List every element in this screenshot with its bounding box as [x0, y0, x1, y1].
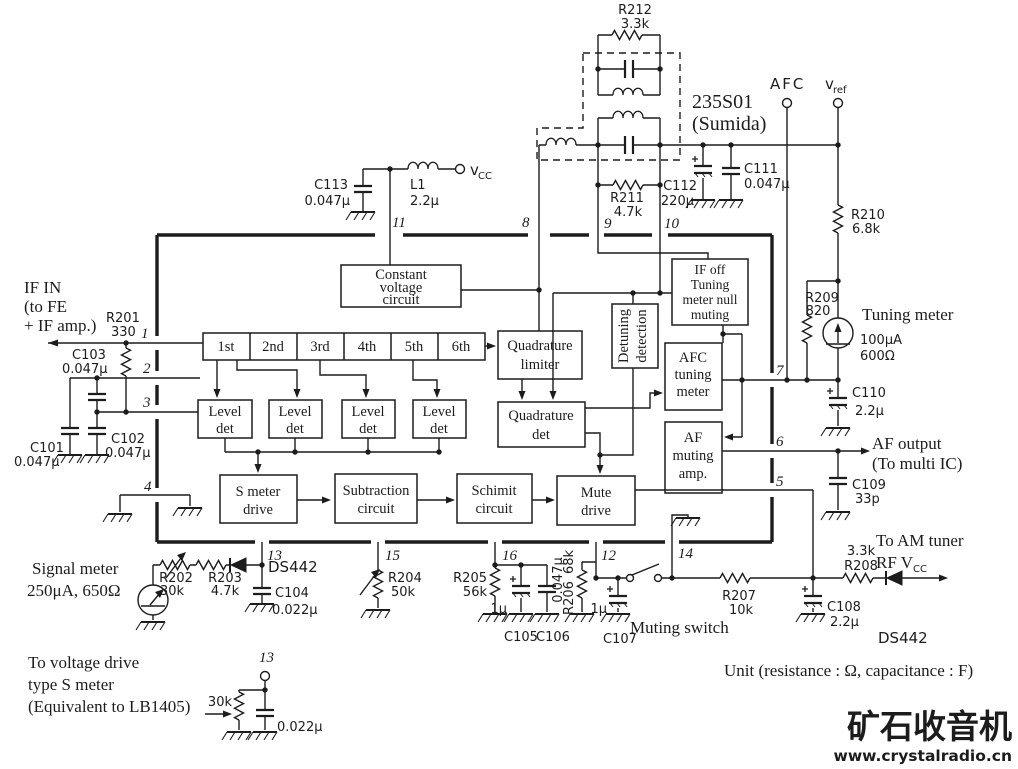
c112-ref: C112 — [663, 179, 697, 194]
quad-det-line2: det — [532, 427, 550, 443]
logo-text: 矿石收音机 — [847, 707, 1012, 746]
pin-15: 15 — [385, 548, 401, 564]
muting-switch-contact-right[interactable] — [655, 575, 662, 582]
s-meter-alt-line1: To voltage drive — [28, 653, 139, 672]
subtraction-line1: Subtraction — [343, 483, 411, 499]
c105-value: 1μ — [490, 602, 507, 617]
if-in-line1: IF IN — [24, 278, 61, 297]
r210-ref: R210 — [851, 208, 885, 223]
r207-value: 10k — [729, 603, 754, 618]
stage-2: 2nd — [262, 339, 285, 355]
c106-value: 0.047μ — [551, 557, 566, 603]
r207-ref: R207 — [722, 589, 756, 604]
r201-value: 330 — [111, 325, 136, 340]
subtraction-line2: circuit — [357, 501, 394, 517]
r211-value: 4.7k — [614, 205, 643, 220]
c101-value: 0.047μ — [14, 455, 60, 470]
s-meter-drive-line2: drive — [243, 502, 273, 518]
tuning-meter-current: 100μA — [860, 333, 902, 348]
schematic-page: Constant voltage circuit 1st 2nd 3rd 4th… — [0, 0, 1018, 769]
signal-meter-spec: 250μA, 650Ω — [27, 581, 121, 600]
pin-9: 9 — [604, 216, 612, 232]
pot-value: 30k — [208, 695, 233, 710]
r212-ref: R212 — [618, 3, 652, 18]
if-in-line3: + IF amp.) — [24, 316, 96, 335]
c104-value: 0.022μ — [272, 603, 318, 618]
r210-value: 6.8k — [852, 222, 881, 237]
stage-1: 1st — [218, 339, 235, 355]
muting-switch-label: Muting switch — [630, 618, 729, 637]
r208-ref: R208 — [844, 559, 878, 574]
quad-limiter-line2: limiter — [521, 357, 560, 373]
r204-value: 50k — [391, 585, 416, 600]
r209-value: 820 — [806, 304, 831, 319]
d1-ref: DS442 — [268, 558, 318, 576]
vcc-terminal — [456, 165, 465, 174]
background — [0, 0, 1018, 769]
c107-value: 1μ — [590, 602, 607, 617]
c104-ref: C104 — [275, 586, 309, 601]
detuning-line1: Detuning — [616, 309, 632, 363]
pin-16: 16 — [502, 548, 518, 564]
level-det-2-line2: det — [286, 421, 304, 437]
c112-value: 220μ — [661, 194, 694, 209]
afc-meter-line2: tuning — [674, 367, 711, 383]
c102-ref: C102 — [111, 432, 145, 447]
afc-meter-line3: meter — [676, 384, 709, 400]
c113-value: 0.047μ — [305, 194, 351, 209]
r205-ref: R205 — [453, 571, 487, 586]
if-off-line4: muting — [691, 307, 730, 322]
af-output-line2: (To multi IC) — [872, 454, 962, 473]
signal-meter-label: Signal meter — [32, 559, 119, 578]
r208-value: 3.3k — [847, 544, 876, 559]
rf-vcc-sub: CC — [913, 564, 927, 575]
level-det-1-line2: det — [216, 421, 234, 437]
r203-value: 4.7k — [211, 584, 240, 599]
if-off-line2: Tuning — [691, 277, 730, 292]
d2-ref: DS442 — [878, 629, 928, 647]
logo-url: www.crystalradio.cn — [834, 747, 1012, 765]
pin-3: 3 — [142, 395, 151, 411]
mute-drive-line1: Mute — [581, 485, 612, 501]
tuning-meter-res: 600Ω — [860, 349, 895, 364]
c103-ref: C103 — [72, 348, 106, 363]
pin-10: 10 — [664, 216, 680, 232]
c110-ref: C110 — [852, 386, 886, 401]
c108-ref: C108 — [827, 600, 861, 615]
s-meter-alt-line2: type S meter — [28, 675, 114, 694]
l1-value: 2.2μ — [410, 194, 439, 209]
c113-ref: C113 — [314, 178, 348, 193]
transformer-label: 235S01 — [692, 91, 753, 113]
detuning-line2: detection — [634, 309, 650, 363]
r211-ref: R211 — [610, 191, 644, 206]
afc-label: AFC — [770, 75, 805, 93]
c102-value: 0.047μ — [105, 446, 151, 461]
am-tuner-label: To AM tuner — [876, 531, 964, 550]
rf-vcc-base: RF V — [876, 553, 914, 572]
r202-value: 30k — [160, 584, 185, 599]
r204-ref: R204 — [388, 571, 422, 586]
schimit-line2: circuit — [475, 501, 512, 517]
af-output-line1: AF output — [872, 434, 942, 453]
c109-ref: C109 — [852, 478, 886, 493]
stage-6: 6th — [452, 339, 471, 355]
level-det-3-line1: Level — [351, 404, 384, 420]
afc-meter-line1: AFC — [679, 350, 707, 366]
level-det-2-line1: Level — [278, 404, 311, 420]
tuning-meter-label: Tuning meter — [862, 305, 954, 324]
schimit-line1: Schimit — [471, 483, 516, 499]
c108-value: 2.2μ — [830, 615, 859, 630]
c103-value: 0.047μ — [62, 362, 108, 377]
pin-2: 2 — [143, 361, 151, 377]
c111-ref: C111 — [744, 162, 778, 177]
r205-value: 56k — [463, 585, 488, 600]
l1-ref: L1 — [410, 178, 426, 193]
pin-4: 4 — [144, 479, 152, 495]
sub-cap-value: 0.022μ — [277, 720, 323, 735]
af-muting-line1: AF — [684, 430, 703, 446]
transformer-maker-label: (Sumida) — [692, 113, 766, 135]
vref-sub: ref — [833, 85, 847, 96]
level-det-1-line1: Level — [208, 404, 241, 420]
if-off-line3: meter null — [682, 292, 737, 307]
pin-1: 1 — [141, 326, 149, 342]
r212-value: 3.3k — [621, 17, 650, 32]
c101-ref: C101 — [30, 441, 64, 456]
pin-11: 11 — [392, 215, 406, 231]
quad-det-line1: Quadrature — [508, 408, 573, 424]
c110-value: 2.2μ — [855, 404, 884, 419]
c106-ref: C106 — [536, 630, 570, 645]
level-det-4-line1: Level — [422, 404, 455, 420]
vcc-sub: CC — [478, 171, 492, 182]
pin-8: 8 — [522, 215, 530, 231]
pin-5: 5 — [776, 474, 784, 490]
pin-12: 12 — [601, 548, 617, 564]
stage-5: 5th — [405, 339, 424, 355]
level-det-4-line2: det — [430, 421, 448, 437]
af-muting-line3: amp. — [679, 466, 708, 482]
r201-ref: R201 — [106, 311, 140, 326]
af-muting-line2: muting — [672, 448, 713, 464]
constant-voltage-line3: circuit — [382, 292, 419, 308]
c109-value: 33p — [855, 492, 880, 507]
s-meter-alt-line3: (Equivalent to LB1405) — [28, 697, 190, 716]
site-logo: 矿石收音机 www.crystalradio.cn — [834, 707, 1012, 765]
level-det-3-line2: det — [359, 421, 377, 437]
unit-note: Unit (resistance : Ω, capacitance : F) — [724, 661, 973, 680]
afc-terminal — [783, 99, 792, 108]
mute-drive-line2: drive — [581, 503, 611, 519]
stage-4: 4th — [358, 339, 377, 355]
if-in-line2: (to FE — [24, 297, 67, 316]
vref-terminal — [834, 99, 843, 108]
muting-switch-contact-left[interactable] — [627, 575, 634, 582]
if-off-line1: IF off — [695, 262, 726, 277]
c105-ref: C105 — [504, 630, 538, 645]
stage-3: 3rd — [310, 339, 330, 355]
circuit-schematic: Constant voltage circuit 1st 2nd 3rd 4th… — [0, 0, 1018, 769]
pin-13-sub: 13 — [259, 650, 274, 666]
quad-limiter-line1: Quadrature — [507, 338, 572, 354]
c111-value: 0.047μ — [744, 177, 790, 192]
pin-14: 14 — [678, 546, 694, 562]
s-meter-drive-line1: S meter — [236, 484, 281, 500]
pin-6: 6 — [776, 434, 784, 450]
pin13-terminal — [261, 672, 270, 681]
